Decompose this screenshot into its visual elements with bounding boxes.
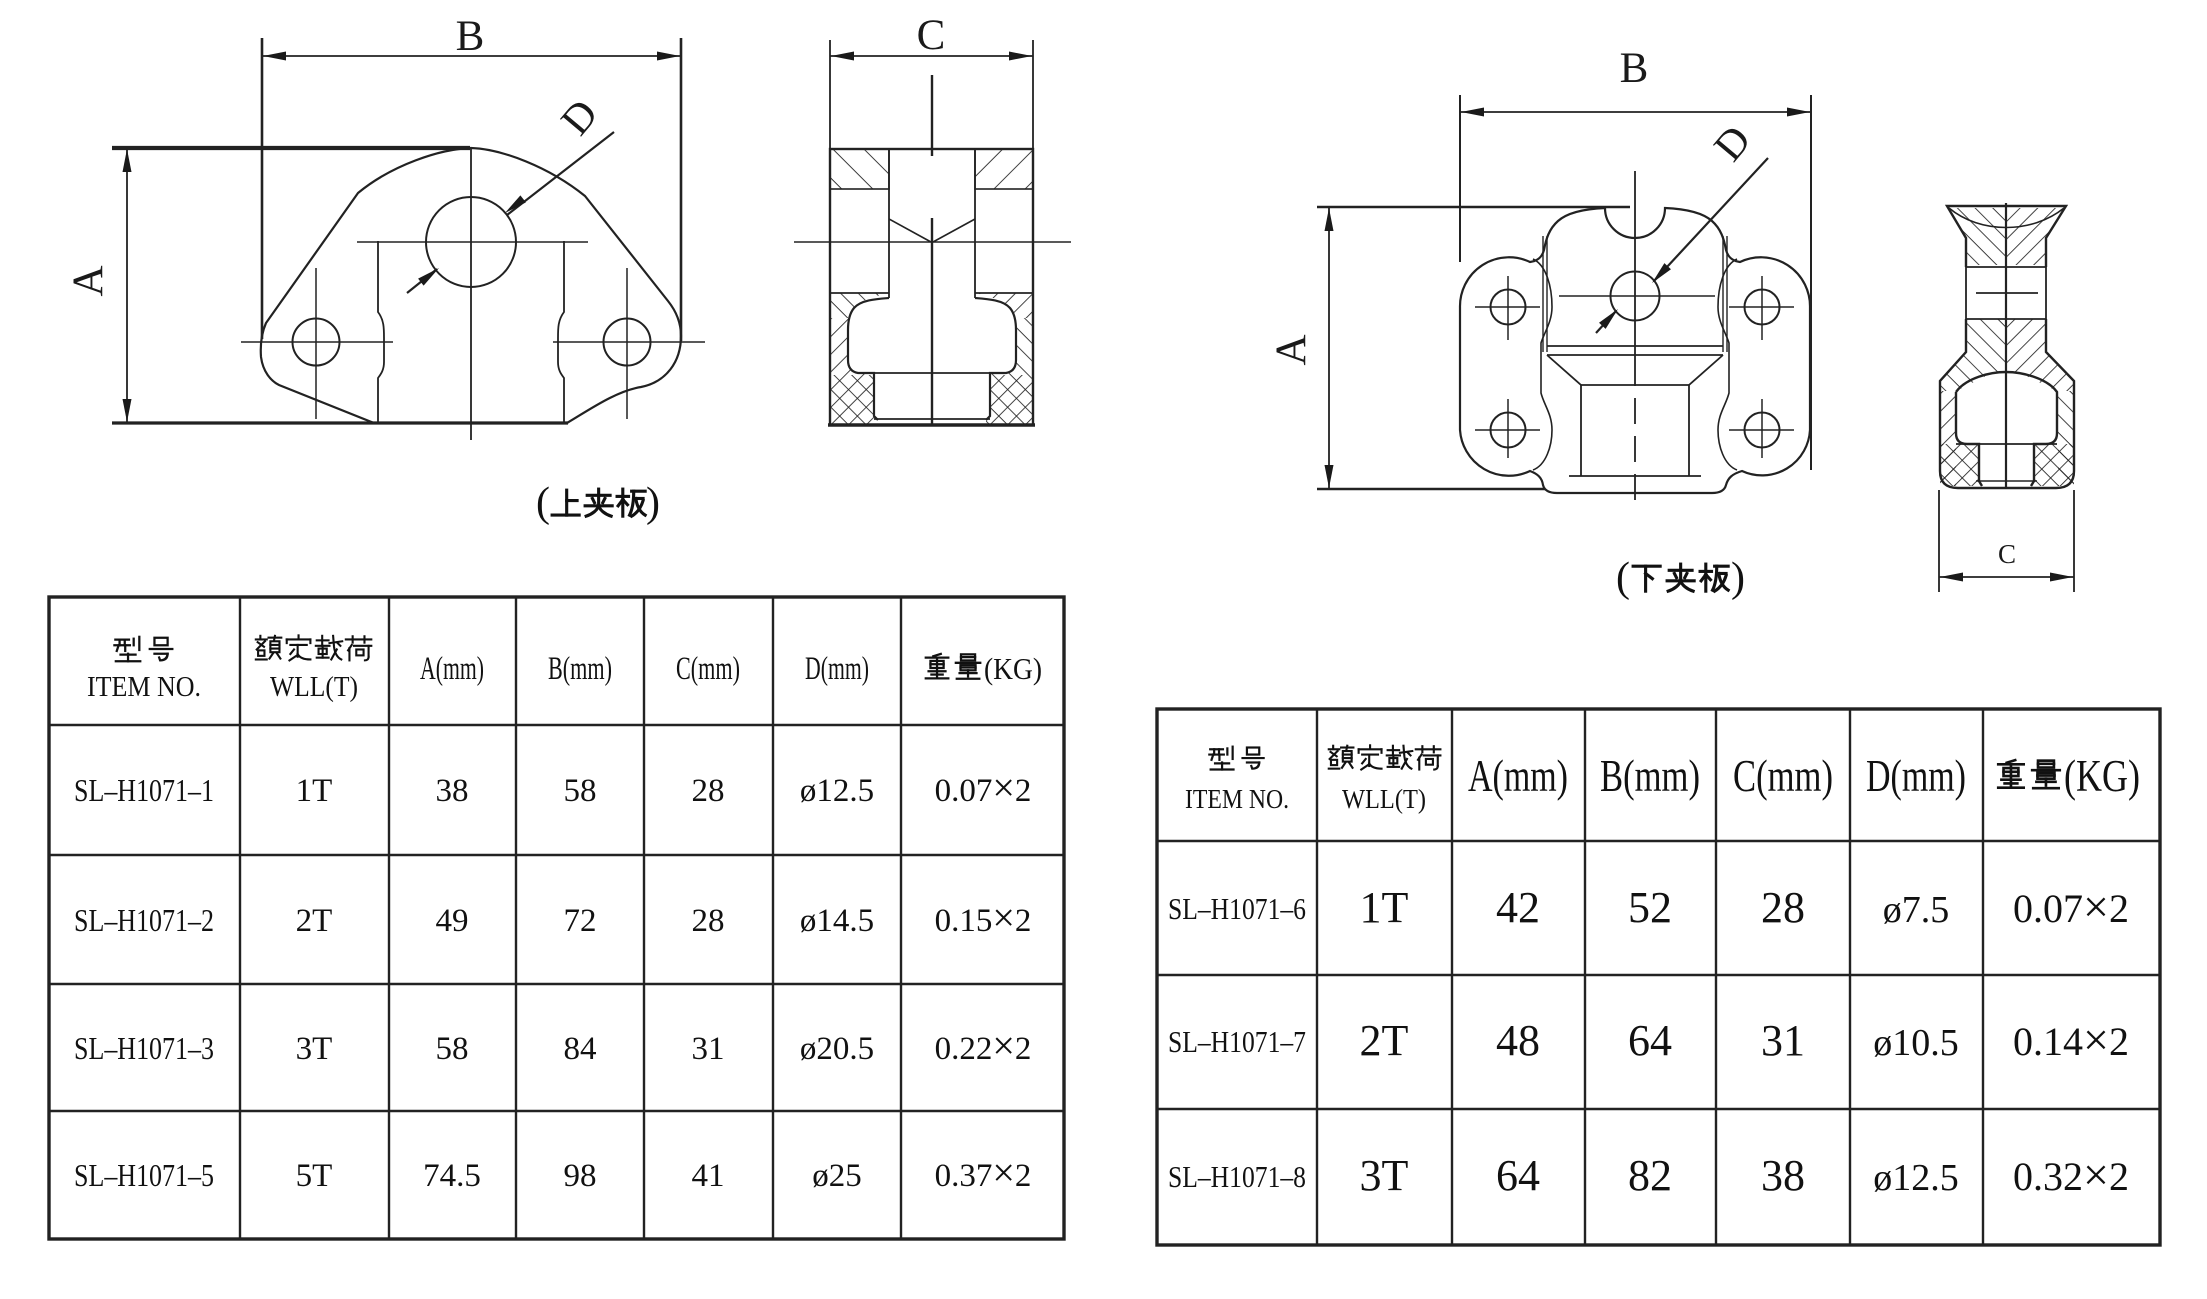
svg-text:C: C bbox=[917, 12, 946, 59]
svg-text:SL–H1071–6: SL–H1071–6 bbox=[1168, 891, 1306, 926]
svg-text:0.14×2: 0.14×2 bbox=[2013, 1014, 2129, 1065]
svg-text:B(mm): B(mm) bbox=[1600, 751, 1700, 801]
svg-text:SL–H1071–1: SL–H1071–1 bbox=[74, 772, 214, 808]
svg-text:98: 98 bbox=[564, 1158, 597, 1194]
svg-text:0.07×2: 0.07×2 bbox=[2013, 881, 2129, 932]
svg-text:2T: 2T bbox=[1360, 1016, 1409, 1065]
svg-text:D(mm): D(mm) bbox=[805, 651, 869, 687]
svg-text:ITEM NO.: ITEM NO. bbox=[1185, 784, 1289, 814]
svg-text:38: 38 bbox=[436, 773, 469, 809]
svg-text:41: 41 bbox=[692, 1158, 725, 1194]
svg-text:ø25: ø25 bbox=[812, 1158, 862, 1194]
svg-text:ø10.5: ø10.5 bbox=[1873, 1022, 1959, 1064]
svg-text:(: ( bbox=[536, 480, 550, 526]
svg-text:A(mm): A(mm) bbox=[420, 651, 484, 687]
svg-text:28: 28 bbox=[692, 903, 725, 939]
svg-text:SL–H1071–2: SL–H1071–2 bbox=[74, 902, 214, 938]
svg-text:74.5: 74.5 bbox=[423, 1158, 481, 1194]
svg-text:C(mm): C(mm) bbox=[1733, 751, 1833, 801]
svg-text:A: A bbox=[1268, 334, 1315, 365]
svg-text:ø12.5: ø12.5 bbox=[1873, 1157, 1959, 1199]
svg-text:A: A bbox=[65, 265, 112, 296]
svg-text:B: B bbox=[1620, 45, 1649, 92]
svg-text:58: 58 bbox=[436, 1031, 469, 1067]
svg-text:SL–H1071–7: SL–H1071–7 bbox=[1168, 1024, 1306, 1059]
svg-text:64: 64 bbox=[1628, 1016, 1672, 1065]
svg-text:38: 38 bbox=[1761, 1151, 1805, 1200]
svg-text:ø7.5: ø7.5 bbox=[1883, 889, 1950, 931]
svg-text:58: 58 bbox=[564, 773, 597, 809]
svg-text:WLL(T): WLL(T) bbox=[1342, 784, 1426, 814]
svg-text:ø20.5: ø20.5 bbox=[800, 1031, 874, 1067]
svg-text:84: 84 bbox=[564, 1031, 597, 1067]
svg-text:5T: 5T bbox=[296, 1158, 333, 1194]
svg-text:42: 42 bbox=[1496, 883, 1540, 932]
svg-text:(KG): (KG) bbox=[984, 651, 1042, 686]
svg-text:ø14.5: ø14.5 bbox=[800, 903, 874, 939]
svg-text:SL–H1071–3: SL–H1071–3 bbox=[74, 1030, 214, 1066]
svg-text:31: 31 bbox=[1761, 1016, 1805, 1065]
svg-text:(: ( bbox=[1616, 555, 1630, 601]
svg-text:48: 48 bbox=[1496, 1016, 1540, 1065]
svg-text:82: 82 bbox=[1628, 1151, 1672, 1200]
svg-text:C: C bbox=[1998, 539, 2016, 569]
svg-text:C(mm): C(mm) bbox=[676, 651, 740, 687]
svg-text:ø12.5: ø12.5 bbox=[800, 773, 874, 809]
svg-text:A(mm): A(mm) bbox=[1468, 751, 1568, 801]
svg-text:B(mm): B(mm) bbox=[548, 651, 612, 687]
svg-text:52: 52 bbox=[1628, 883, 1672, 932]
svg-text:3T: 3T bbox=[1360, 1151, 1409, 1200]
svg-text:SL–H1071–8: SL–H1071–8 bbox=[1168, 1159, 1306, 1194]
svg-text:WLL(T): WLL(T) bbox=[270, 671, 358, 703]
svg-text:0.32×2: 0.32×2 bbox=[2013, 1149, 2129, 1200]
svg-text:72: 72 bbox=[564, 903, 597, 939]
svg-text:28: 28 bbox=[1761, 883, 1805, 932]
svg-text:1T: 1T bbox=[296, 773, 333, 809]
svg-text:B: B bbox=[456, 13, 485, 60]
svg-text:3T: 3T bbox=[296, 1031, 333, 1067]
svg-text:2T: 2T bbox=[296, 903, 333, 939]
svg-text:64: 64 bbox=[1496, 1151, 1540, 1200]
svg-text:ITEM NO.: ITEM NO. bbox=[87, 671, 201, 703]
svg-text:D(mm): D(mm) bbox=[1866, 751, 1966, 801]
svg-text:1T: 1T bbox=[1360, 883, 1409, 932]
svg-text:28: 28 bbox=[692, 773, 725, 809]
svg-text:(KG): (KG) bbox=[2064, 751, 2140, 801]
svg-text:31: 31 bbox=[692, 1031, 725, 1067]
svg-text:): ) bbox=[646, 480, 660, 526]
svg-text:): ) bbox=[1731, 555, 1745, 601]
svg-text:SL–H1071–5: SL–H1071–5 bbox=[74, 1157, 214, 1193]
svg-text:49: 49 bbox=[436, 903, 469, 939]
